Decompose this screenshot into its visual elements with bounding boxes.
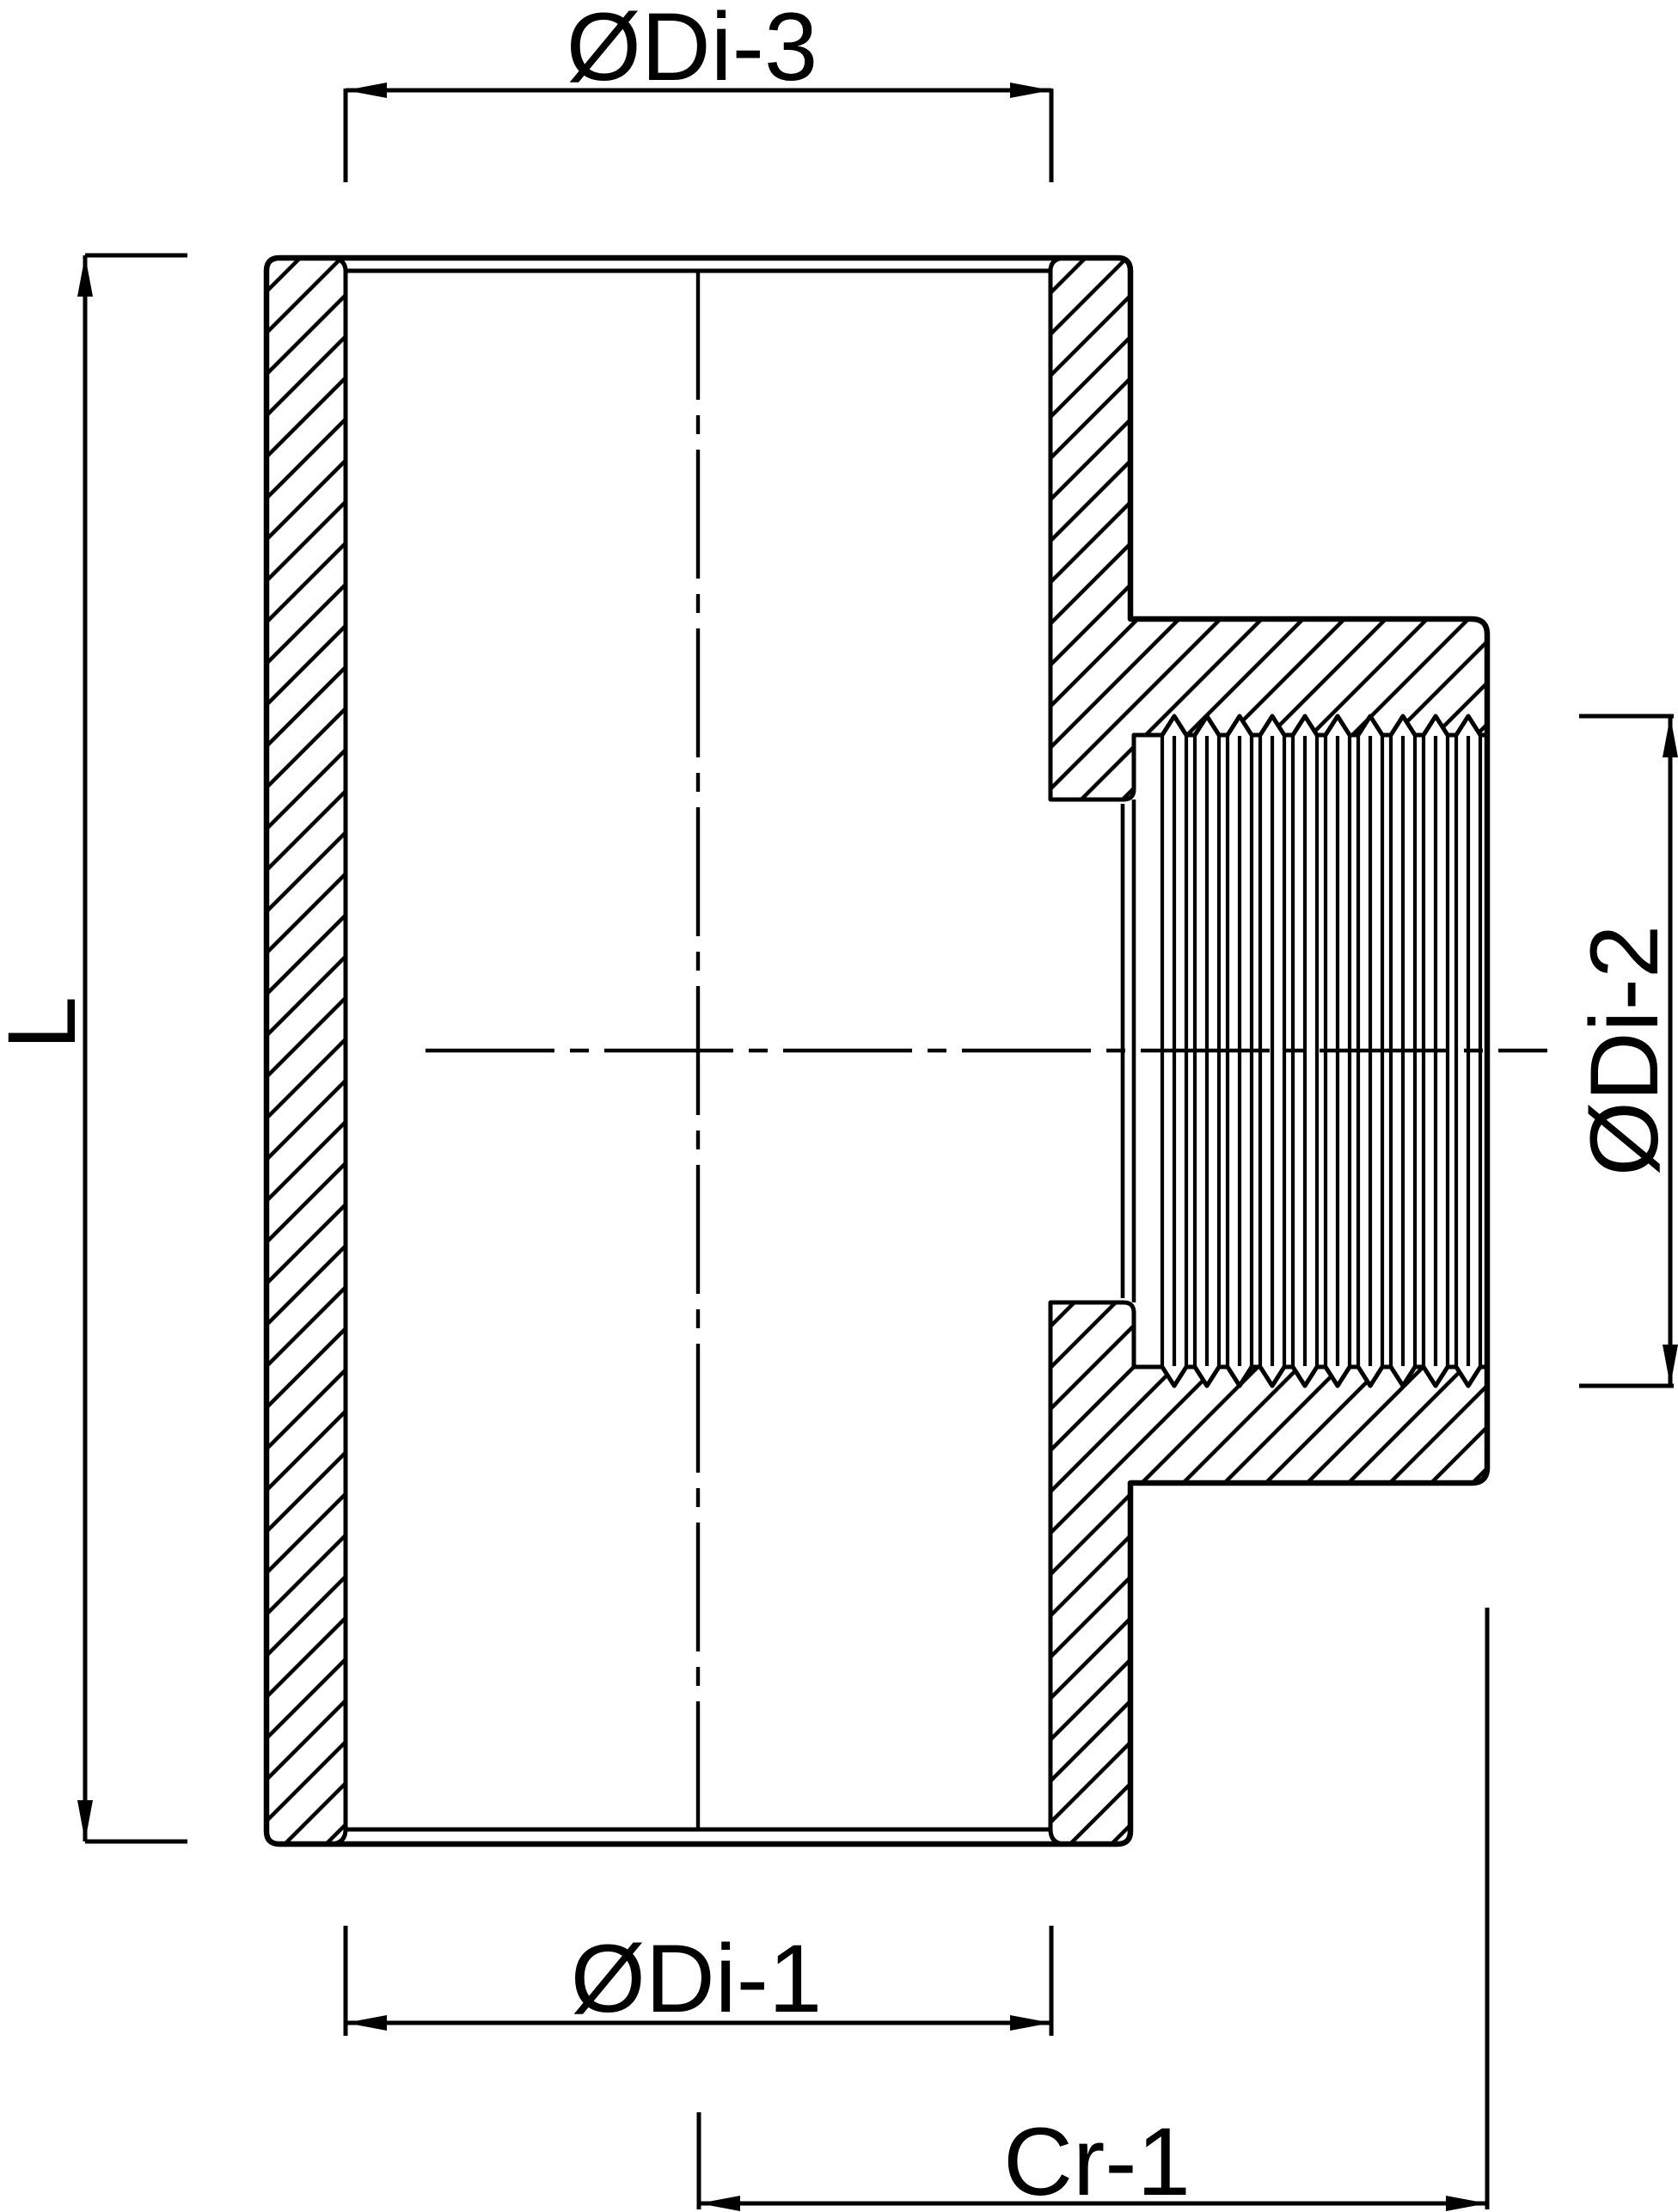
odi2-arrow-bottom [1663,1345,1678,1386]
l-arrow-bottom [77,1800,93,1841]
odi3-arrow-right [1010,83,1051,98]
odi1-arrow-left [346,2015,387,2031]
upper-junction-hatch [1050,258,1487,800]
label-odi1: ØDi-1 [571,1925,822,2032]
label-l: L [0,996,95,1050]
odi3-arrow-left [346,83,387,98]
lower-junction-hatch [1050,1302,1487,1844]
odi2-arrow-top [1663,716,1678,757]
label-cr1: Cr-1 [1003,2108,1191,2212]
left-wall-hatch [266,258,346,1844]
odi1-arrow-right [1010,2015,1051,2031]
centerlines [426,271,1547,1829]
label-odi2: ØDi-2 [1571,925,1678,1176]
cr1-arrow-right [1446,2196,1487,2211]
technical-drawing-page: ØDi-3 L ØDi-2 ØDi-1 Cr-1 [0,0,1678,2212]
label-odi3: ØDi-3 [566,0,818,101]
cr1-arrow-left [699,2196,740,2211]
tee-fitting-section-drawing: ØDi-3 L ØDi-2 ØDi-1 Cr-1 [0,0,1678,2212]
l-arrow-top [77,255,93,297]
